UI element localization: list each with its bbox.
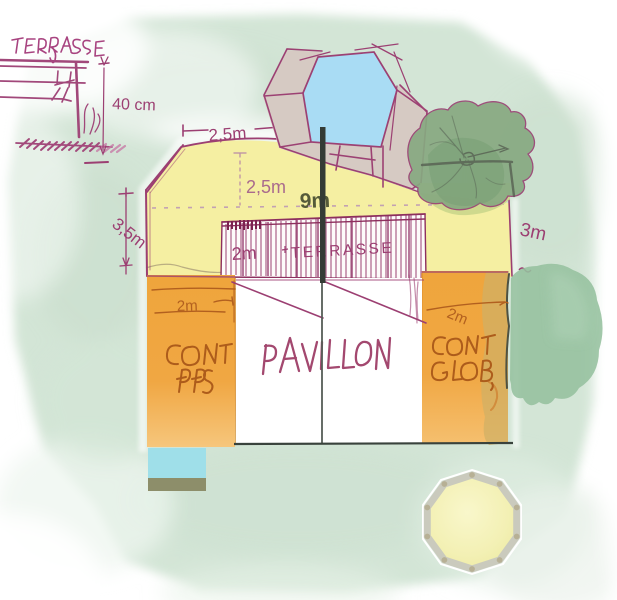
- svg-text:40 cm: 40 cm: [112, 96, 156, 115]
- svg-text:2m: 2m: [231, 243, 257, 264]
- svg-text:2m: 2m: [177, 297, 198, 315]
- svg-text:9m: 9m: [299, 189, 330, 213]
- svg-text:2,5m: 2,5m: [246, 177, 286, 197]
